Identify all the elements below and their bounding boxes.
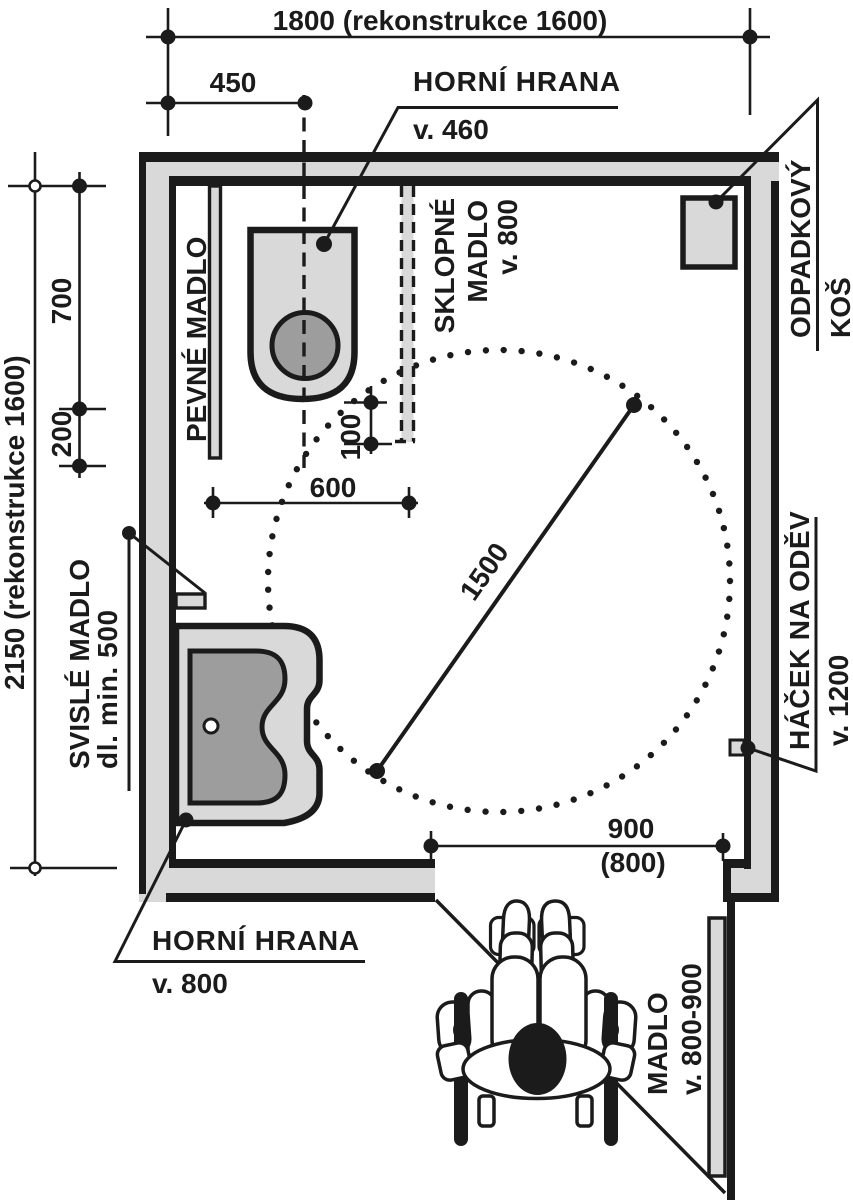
svg-text:HORNÍ HRANA: HORNÍ HRANA [152,925,360,956]
svg-text:(800): (800) [600,847,665,878]
svg-text:HORNÍ HRANA: HORNÍ HRANA [413,66,621,97]
svg-text:MADLO: MADLO [462,200,493,303]
svg-text:SKLOPNÉ: SKLOPNÉ [429,198,460,333]
svg-text:v. 800: v. 800 [492,199,523,275]
svg-text:200: 200 [46,411,77,458]
svg-text:450: 450 [210,67,257,98]
svg-text:v. 800: v. 800 [152,968,228,999]
svg-text:1800 (rekonstrukce 1600): 1800 (rekonstrukce 1600) [273,5,608,36]
svg-text:v. 800-900: v. 800-900 [676,963,707,1095]
svg-text:PEVNÉ MADLO: PEVNÉ MADLO [181,237,212,442]
svg-text:2150 (rekonstrukce 1600): 2150 (rekonstrukce 1600) [0,355,30,690]
svg-text:MADLO: MADLO [642,992,673,1095]
svg-text:ODPADKOVÝ: ODPADKOVÝ [785,159,816,338]
svg-text:700: 700 [46,278,77,325]
svg-text:v. 1200: v. 1200 [823,655,853,746]
svg-text:dl. min. 500: dl. min. 500 [92,609,123,769]
svg-text:SVISLÉ MADLO: SVISLÉ MADLO [64,559,95,769]
svg-text:HÁČEK NA ODĚV: HÁČEK NA ODĚV [783,511,815,750]
svg-text:v. 460: v. 460 [413,114,489,145]
svg-text:KOŠ: KOŠ [824,277,853,338]
svg-text:900: 900 [608,813,655,844]
svg-text:100: 100 [335,414,366,461]
svg-text:600: 600 [310,472,357,503]
